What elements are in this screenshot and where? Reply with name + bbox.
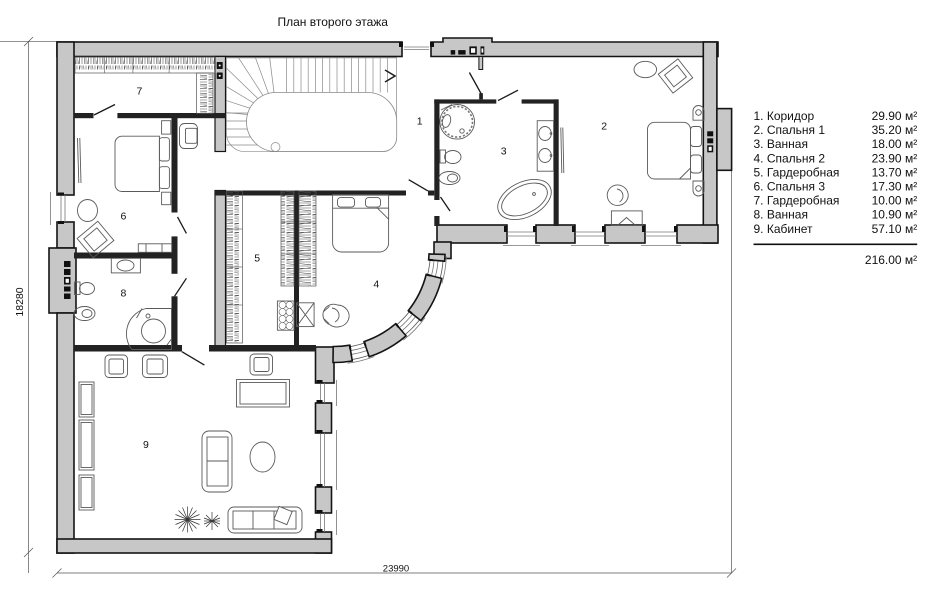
svg-text:6. Спальня 3: 6. Спальня 3 xyxy=(754,180,826,194)
svg-text:6: 6 xyxy=(121,211,127,223)
svg-text:1: 1 xyxy=(417,116,423,128)
svg-text:7: 7 xyxy=(137,86,143,98)
svg-text:57.10 м²: 57.10 м² xyxy=(872,222,918,236)
svg-text:2. Спальня 1: 2. Спальня 1 xyxy=(754,123,826,137)
svg-text:35.20 м²: 35.20 м² xyxy=(872,123,918,137)
svg-text:4: 4 xyxy=(373,279,379,291)
svg-text:10.90 м²: 10.90 м² xyxy=(872,208,918,222)
svg-text:13.70 м²: 13.70 м² xyxy=(872,165,918,179)
svg-text:29.90 м²: 29.90 м² xyxy=(872,109,918,123)
svg-text:2: 2 xyxy=(601,120,607,132)
svg-text:18.00 м²: 18.00 м² xyxy=(872,137,918,151)
svg-text:7. Гардеробная: 7. Гардеробная xyxy=(754,194,840,208)
svg-text:18280: 18280 xyxy=(14,287,26,316)
svg-text:23990: 23990 xyxy=(383,564,409,575)
svg-text:17.30 м²: 17.30 м² xyxy=(872,180,918,194)
svg-text:9: 9 xyxy=(143,439,149,451)
svg-text:3: 3 xyxy=(501,145,507,157)
svg-text:10.00 м²: 10.00 м² xyxy=(872,194,918,208)
svg-text:План второго этажа: План второго этажа xyxy=(278,15,389,29)
svg-text:9. Кабинет: 9. Кабинет xyxy=(754,222,813,236)
svg-text:1. Коридор: 1. Коридор xyxy=(754,109,815,123)
svg-text:5. Гардеробная: 5. Гардеробная xyxy=(754,165,840,179)
svg-text:3. Ванная: 3. Ванная xyxy=(754,137,808,151)
svg-text:216.00 м²: 216.00 м² xyxy=(865,253,917,267)
svg-text:5: 5 xyxy=(254,253,260,265)
svg-text:4. Спальня 2: 4. Спальня 2 xyxy=(754,151,826,165)
svg-text:23.90 м²: 23.90 м² xyxy=(872,151,918,165)
svg-text:8. Ванная: 8. Ванная xyxy=(754,208,808,222)
svg-text:8: 8 xyxy=(121,288,127,300)
